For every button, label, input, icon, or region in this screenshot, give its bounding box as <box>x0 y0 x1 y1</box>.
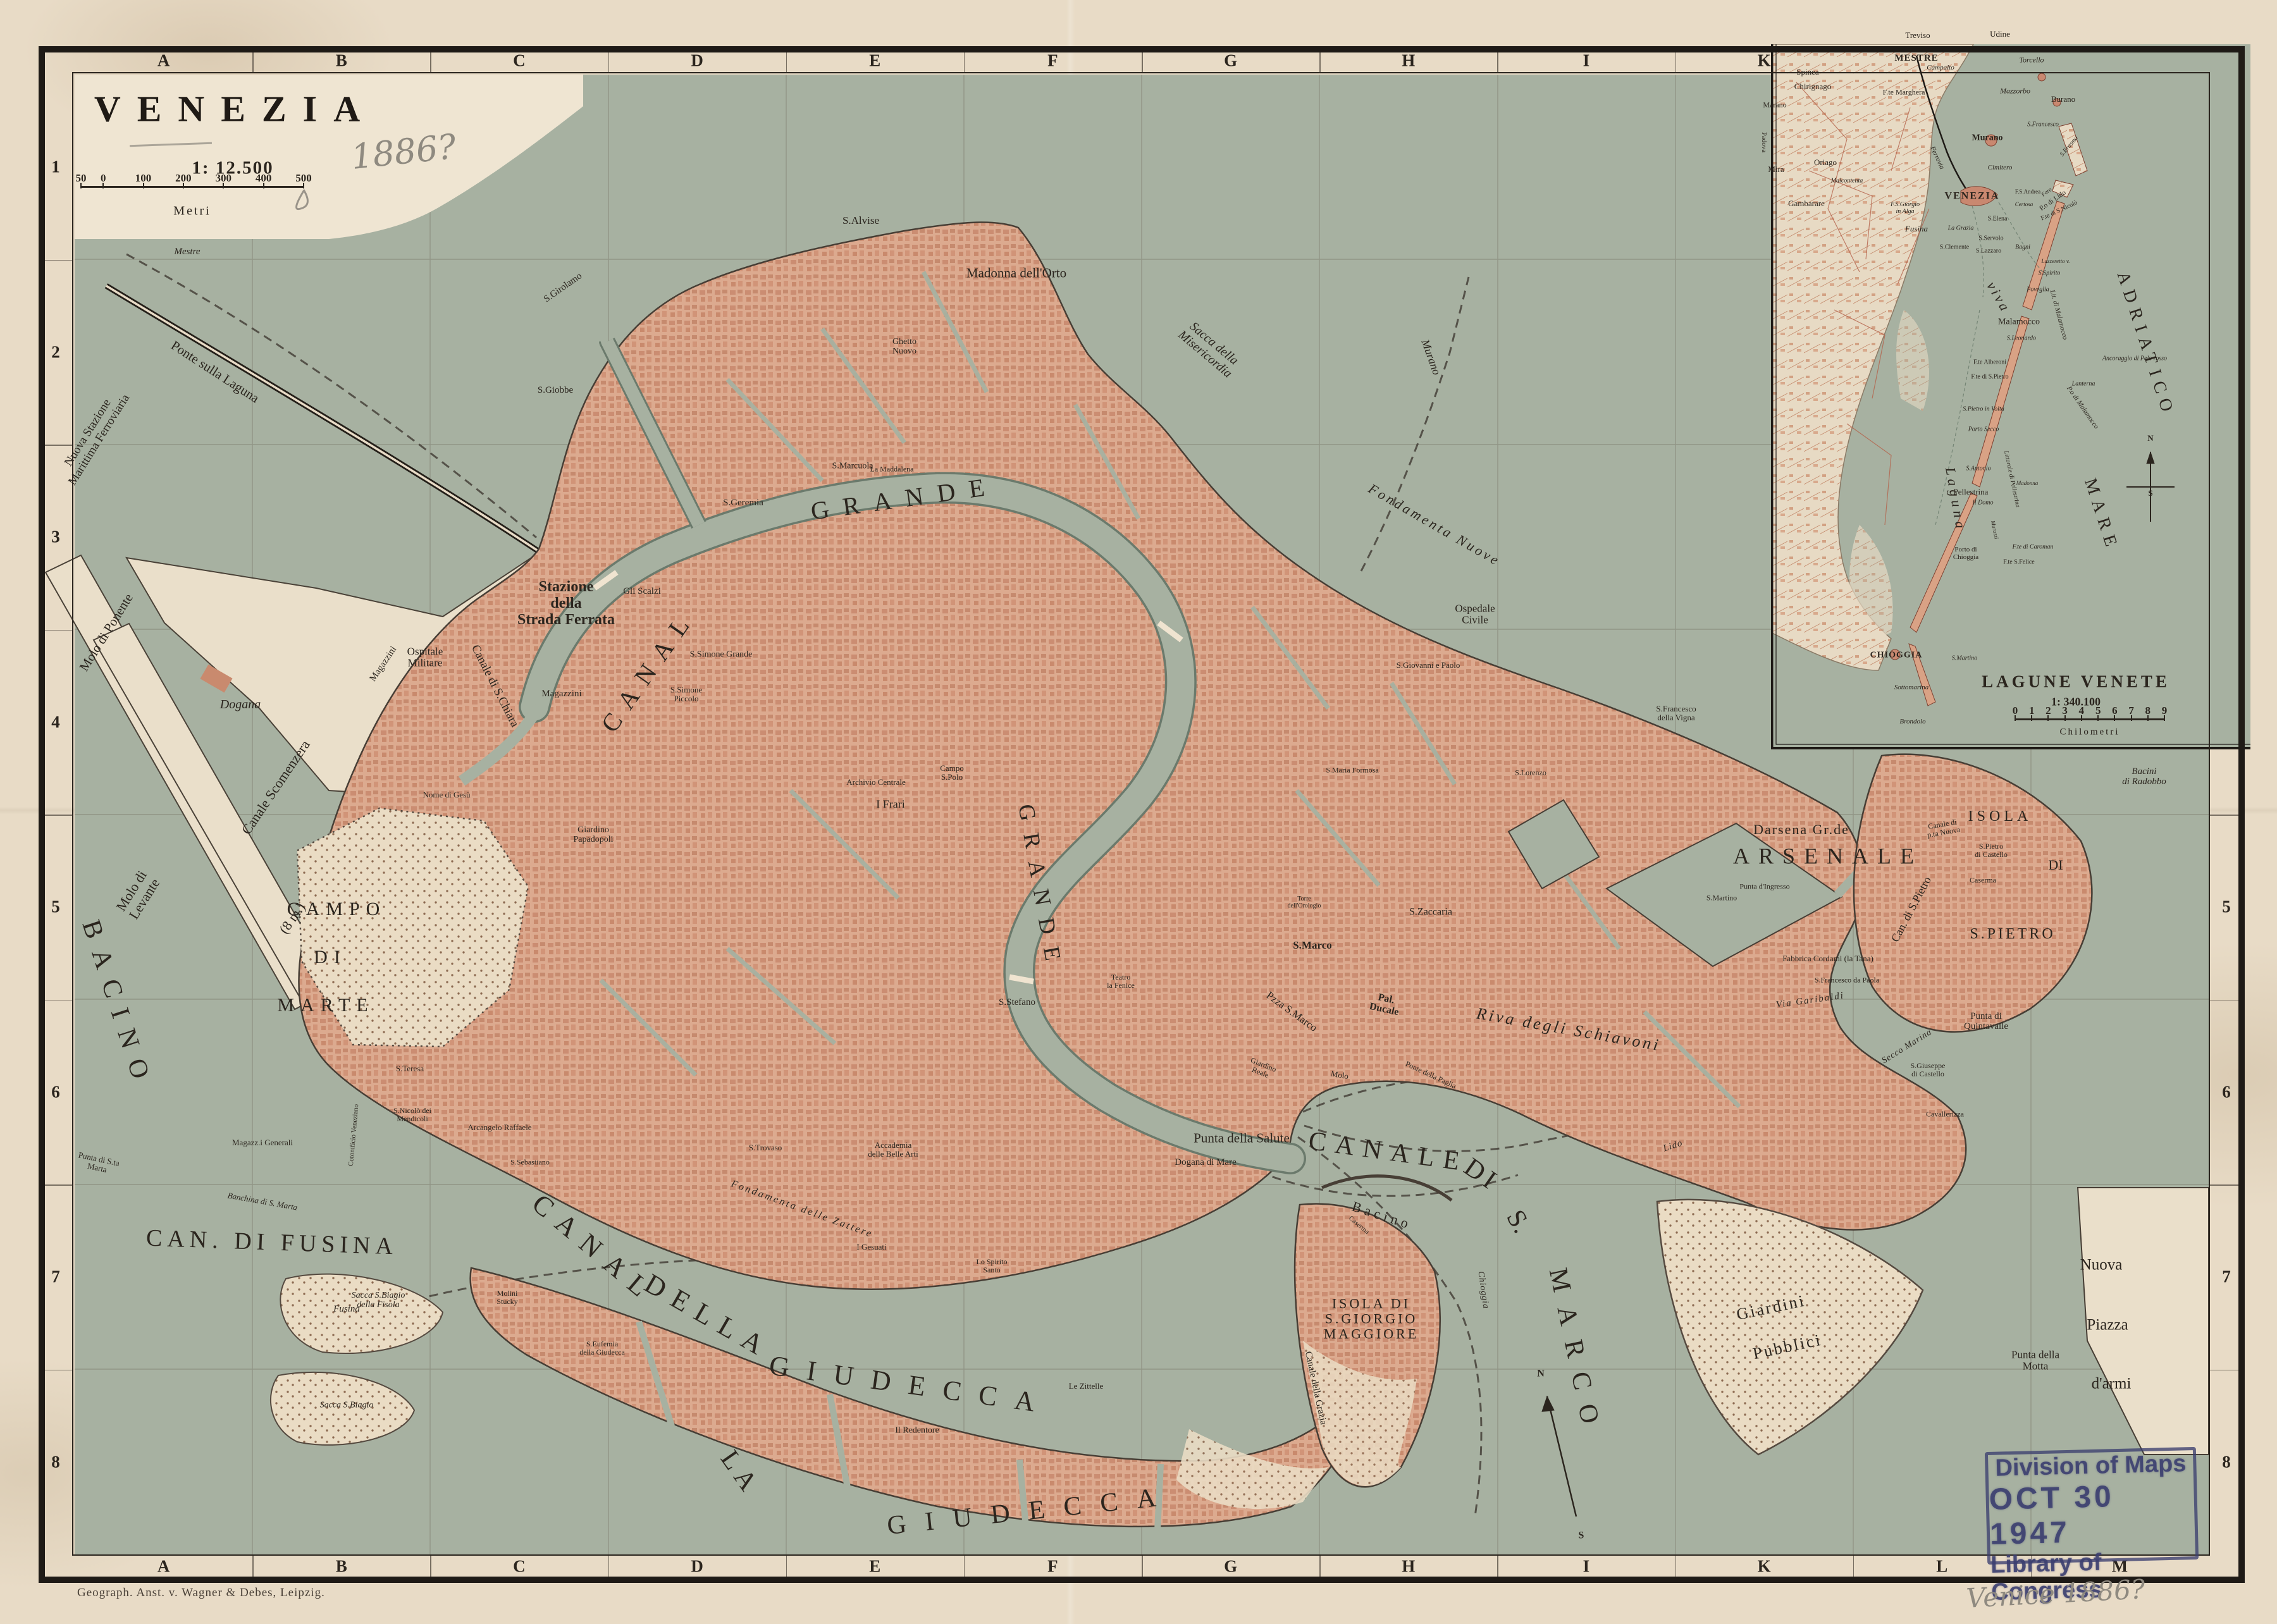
map-label: (8 m.) <box>276 900 308 937</box>
map-label: Sottomarina <box>1894 684 1928 692</box>
map-label: Bacino <box>1350 1199 1414 1233</box>
map-label: Campalto <box>1927 65 1954 72</box>
map-label: Il Domo <box>1972 500 1993 507</box>
map-label: Mestre <box>174 247 200 257</box>
map-label: F.te di S.Pietro <box>1971 374 2008 381</box>
pencil-year-annotation: 1886? <box>349 126 458 177</box>
map-label: S.Francesco da Paola <box>1815 976 1879 985</box>
scale-tick-label: 500 <box>295 172 312 185</box>
map-label: S.Nicolò dei Mendicoli <box>393 1107 431 1123</box>
map-label: Treviso <box>1905 31 1930 40</box>
map-label: Fusina <box>333 1304 360 1314</box>
map-label: Torcello <box>2019 56 2044 65</box>
map-label: S.Giuseppe di Castello <box>1911 1062 1946 1078</box>
map-label: Udine <box>1990 30 2010 39</box>
map-label: Caserma <box>1347 1215 1370 1236</box>
map-label: Giardino Papadopoli <box>574 825 614 844</box>
map-label: Sacca S.Biagio <box>320 1400 374 1410</box>
scale-bar: 500100200300400500 <box>81 176 304 197</box>
inset-compass-north-label: N <box>2147 434 2153 443</box>
map-label: Porto Secco <box>1968 427 1999 434</box>
map-label: S.Francesco della Vigna <box>1656 704 1696 722</box>
map-label: Ferrovia <box>1928 145 1945 171</box>
map-label: Lit. di Malamocco <box>2048 289 2068 340</box>
scale-tick-label: 0 <box>101 172 106 185</box>
map-label: VENEZIA <box>1945 190 2000 201</box>
scale-bar-line <box>2015 718 2164 720</box>
map-label: Porto di Chioggia <box>1953 546 1978 562</box>
map-sheet: AABBCCDDEEFFGGHHIIKKLLMM1122334455667788 <box>0 0 2277 1624</box>
inset-scale-ratio: 1: 340.100 <box>2051 696 2101 709</box>
scale-tick-label: 3 <box>2062 704 2068 717</box>
map-label: MARCO <box>1543 1265 1607 1441</box>
map-label: Pubblici <box>1751 1331 1823 1363</box>
scale-unit: Metri <box>173 204 211 219</box>
map-label: Punta della Motta <box>2011 1350 2059 1373</box>
map-label: Pal. Ducale <box>1368 990 1402 1018</box>
map-label: Murano <box>1419 338 1443 376</box>
map-label: Burano <box>2051 95 2075 104</box>
map-label: Magazz.i Generali <box>232 1138 293 1147</box>
map-label: Dogana <box>220 698 261 712</box>
map-label: Ponte della Paglia <box>1404 1060 1457 1090</box>
map-label: S.Zaccaria <box>1409 906 1452 917</box>
map-label: I Frari <box>876 798 904 810</box>
map-label: Gambarare <box>1788 199 1825 208</box>
map-label: Chirignago <box>1794 82 1832 91</box>
map-label: GRANDE <box>1013 803 1067 975</box>
map-label: S.Pietro di Castello <box>1975 842 2008 859</box>
map-label: I Gesuati <box>856 1243 886 1252</box>
map-label: S.Martino <box>1952 656 1977 663</box>
scale-tick-label: 1 <box>2029 704 2035 717</box>
map-label: Oriago <box>1814 158 1837 167</box>
map-label: Molo <box>1330 1069 1349 1081</box>
inset-title: LAGUNE VENETE <box>1982 672 2170 692</box>
map-label: Pellestrina <box>1954 488 1989 496</box>
map-label: Cotonificio Veneziano <box>348 1104 361 1166</box>
map-label: Nuova <box>2080 1257 2123 1274</box>
map-label: S.Sebastiano <box>510 1159 550 1167</box>
map-label: Laguna <box>1942 466 1968 533</box>
map-label: F.te Alberoni <box>1973 360 2006 367</box>
map-label: LA <box>715 1446 766 1501</box>
map-label: Murazzi <box>1989 520 1999 540</box>
map-label: S.Leonardo <box>2007 336 2036 343</box>
map-label: F.te di S.Nicolò <box>2040 200 2078 223</box>
map-label: Punta di Quintavalle <box>1964 1011 2008 1031</box>
stamp-line-1: Division of Maps <box>1995 1450 2187 1482</box>
map-label: F.te S.Felice <box>2003 560 2034 567</box>
map-label: CANALE <box>1307 1127 1470 1178</box>
scale-bar-line <box>81 186 304 188</box>
map-label: Padova <box>1760 132 1767 152</box>
scale-tick-label: 50 <box>76 172 87 185</box>
map-label: Caserma <box>1970 877 1996 885</box>
map-label: Certosa <box>2015 202 2033 208</box>
map-label: MESTRE <box>1894 53 1938 63</box>
map-label: Nuova Stazione Marittima Ferroviaria <box>55 385 132 488</box>
stamp-date: OCT 30 1947 <box>1989 1477 2195 1552</box>
map-label: ADRIATICO <box>2113 269 2178 420</box>
map-label: S.Francesco <box>2027 122 2059 129</box>
map-label: S.Marco <box>1293 940 1332 951</box>
map-label: GIUDECCA <box>885 1482 1176 1541</box>
map-label: S.Giobbe <box>538 385 573 395</box>
map-label: Banchina di S. Marta <box>227 1191 299 1212</box>
map-label: S.Antonio <box>1966 466 1990 473</box>
map-label: Ponte sulla Laguna <box>168 338 261 406</box>
map-label: Mazzorbo <box>2000 87 2030 95</box>
map-label: viva <box>1984 279 2014 315</box>
map-label: Dogana di Mare <box>1175 1157 1236 1167</box>
map-label: S.Alvise <box>842 215 879 226</box>
map-label: CAN. DI FUSINA <box>145 1226 398 1260</box>
map-label: S.PIETRO <box>1970 926 2055 943</box>
map-label: Cimitero <box>1988 164 2013 172</box>
map-label: S.Simone Grande <box>690 649 753 659</box>
map-label: Le Zittelle <box>1069 1382 1104 1391</box>
map-label: Magazzini <box>541 689 581 699</box>
map-label: Sacca S.Biagio della Fisola <box>352 1291 405 1310</box>
map-label: Ospitale Militare <box>407 646 443 670</box>
map-label: Via Garibaldi <box>1775 990 1845 1010</box>
map-label: P.o di Lido <box>2039 189 2068 212</box>
map-label: GRANDE <box>809 472 1000 525</box>
map-label: S.Maria Formosa <box>1326 766 1378 775</box>
publisher-imprint: Geograph. Anst. v. Wagner & Debes, Leipz… <box>77 1586 325 1600</box>
stamp-line-3: Library of Congress <box>1990 1547 2197 1606</box>
map-label: S.Lorenzo <box>1515 769 1546 777</box>
map-label: Mira <box>1768 165 1784 174</box>
map-label: Can. di S.Pietro <box>1889 875 1934 944</box>
library-of-congress-stamp: Division of Maps OCT 30 1947 Library of … <box>1985 1447 2199 1565</box>
map-label: F.S.Andrea <box>2015 189 2040 195</box>
map-label: Giardino Reale <box>1246 1056 1277 1081</box>
map-label: Teatro la Fenice <box>1107 973 1135 990</box>
scale-tick-label: 300 <box>216 172 232 185</box>
scale-tick-label: 2 <box>2046 704 2051 717</box>
map-label: Darsena Gr.de <box>1753 822 1849 837</box>
map-label: Bagni <box>2015 245 2030 252</box>
map-label: Canale Scomenzera <box>238 737 312 837</box>
scale-tick-label: 200 <box>175 172 192 185</box>
map-label: F.te Marghera <box>1883 89 1925 97</box>
map-label: ISOLA <box>1968 809 2032 825</box>
map-label: Il Redentore <box>895 1425 939 1435</box>
map-label: Malamocco <box>1998 317 2040 326</box>
map-label: La Maddalena <box>870 465 914 474</box>
map-label: F.te di Caroman <box>2013 544 2054 551</box>
inset-scale-bar: 0123456789 <box>2015 708 2164 727</box>
map-label: S.Teresa <box>396 1064 424 1073</box>
map-label: S.Marcuola <box>832 461 873 471</box>
map-label: Ghetto Nuovo <box>892 337 916 356</box>
map-label: Ancoraggio di Pelo rosso <box>2102 356 2167 363</box>
map-label: S.Trovaso <box>749 1143 782 1152</box>
map-label: La Grazia <box>1948 226 1974 233</box>
map-label: Cavallerizza <box>1926 1110 1964 1119</box>
map-label: CAMPO <box>287 899 386 920</box>
map-label: GIUDECCA <box>767 1350 1054 1420</box>
map-label: Canale della Grazia <box>1303 1350 1328 1425</box>
scale-tick-label: 6 <box>2112 704 2118 717</box>
scale-tick-label: 4 <box>2079 704 2085 717</box>
pencil-underline <box>130 142 212 147</box>
map-label: Arcangelo Raffaele <box>467 1123 531 1132</box>
map-label: S.Martino <box>1706 894 1737 902</box>
scale-tick-label: 5 <box>2095 704 2101 717</box>
map-label: Lo Spirito Santo <box>976 1258 1007 1274</box>
map-label: Campo S.Polo <box>940 764 964 782</box>
map-label: Magazzini <box>368 644 399 684</box>
map-label: Sacca della Misericordia <box>1175 317 1243 381</box>
map-label: Torre dell'Orologio <box>1288 896 1321 910</box>
map-label: S.Lazzaro <box>1976 249 2001 255</box>
map-label: Punta di S.ta Marta <box>76 1150 120 1176</box>
scale-tick-label: 0 <box>2013 704 2018 717</box>
map-label: S.Girolamo <box>542 271 584 304</box>
map-label: DI <box>314 947 347 968</box>
map-label: Giardini <box>1735 1292 1807 1324</box>
map-label: Punta della Salute <box>1194 1131 1290 1146</box>
map-label: Fondamenta Nuove <box>1366 481 1503 569</box>
map-label: Pzza S.Marco <box>1264 990 1319 1034</box>
map-label: CANAL <box>596 603 701 737</box>
scale-tick-label: 7 <box>2128 704 2134 717</box>
map-label: Lido <box>1662 1138 1684 1153</box>
map-label: Archivio Centrale <box>846 778 906 787</box>
map-label: Molo di Ponente <box>77 591 135 674</box>
map-label: Nome di Gesù <box>423 790 470 799</box>
map-label: S.Servolo <box>1978 236 2003 243</box>
map-label: Gli Scalzi <box>623 586 661 596</box>
map-label: MARTE <box>277 995 374 1016</box>
map-title: VENEZIA <box>94 88 376 130</box>
map-label: Brondolo <box>1899 718 1925 726</box>
map-label: Lazzeretto v. <box>2042 259 2070 265</box>
scale-tick-label: 9 <box>2162 704 2168 717</box>
map-label: Madonna <box>2016 481 2039 487</box>
map-label: Molo di Levante <box>113 868 163 921</box>
map-label: Canale di S.Chiara <box>468 643 521 730</box>
map-label: Marano <box>1763 101 1786 109</box>
map-label: S.Giovanni e Paolo <box>1397 661 1460 670</box>
map-label: Littorale di Pellestrina <box>2002 450 2021 508</box>
compass-south-label: S <box>1579 1530 1584 1541</box>
map-label: Malcontenta <box>1831 178 1863 185</box>
map-label: Faro <box>2040 187 2053 198</box>
map-label: Poveglia <box>2027 287 2049 294</box>
map-label: S.Geremia <box>723 498 763 508</box>
map-label: Murano <box>1972 133 2003 142</box>
map-label: Accademia delle Belle Arti <box>868 1141 918 1159</box>
map-label: DI <box>2048 858 2063 873</box>
map-label: Madonna dell'Orto <box>966 266 1066 281</box>
map-label: Molini Stucky <box>497 1289 517 1306</box>
map-label: CHIOGGIA <box>1870 650 1923 660</box>
map-label: ISOLA DI S.GIORGIO MAGGIORE <box>1324 1296 1419 1341</box>
map-label: S.Simone Piccolo <box>670 686 702 703</box>
map-label: DELLA <box>639 1268 777 1365</box>
map-label: Piazza <box>2087 1317 2128 1334</box>
map-label: Fabbrica Cordami (la Tana) <box>1782 954 1873 963</box>
map-label: S.Pietro in Volta <box>1963 407 2004 414</box>
map-label: Spinea <box>1796 68 1818 77</box>
scale-tick-label: 8 <box>2145 704 2151 717</box>
map-label: Riva degli Schiavoni <box>1475 1005 1662 1055</box>
map-label: Chioggia <box>1476 1270 1490 1310</box>
map-label: Fusina <box>1905 225 1928 233</box>
map-label: DI <box>1459 1153 1504 1196</box>
map-label: F.S.Giorgio in Alga <box>1891 202 1920 216</box>
inset-scale-unit: Chilometri <box>2060 727 2120 738</box>
map-label: P.o di Malamocco <box>2064 385 2099 431</box>
scale-tick-label: 400 <box>256 172 272 185</box>
map-label: S.Clemente <box>1940 245 1969 252</box>
map-label: Ospedale Civile <box>1455 603 1495 627</box>
map-label: Fondamenta delle Zattere <box>729 1178 874 1240</box>
map-label: Secco Marina <box>1880 1028 1934 1066</box>
map-label: Stazione della Strada Ferrata <box>517 579 615 629</box>
map-label: S.Spirito <box>2039 271 2061 278</box>
map-label: S.Erasmo <box>2059 135 2080 159</box>
map-label: d'armi <box>2092 1375 2132 1393</box>
map-label: Lanterna <box>2072 381 2095 388</box>
map-label: Bacini di Radobbo <box>2122 766 2166 787</box>
map-label: MARE <box>2080 476 2122 555</box>
map-label: S.Eufemia della Giudecca <box>579 1340 625 1356</box>
map-label: S.Elena <box>1988 216 2008 223</box>
map-label: S.Stefano <box>999 997 1035 1007</box>
map-label: Punta d'Ingresso <box>1739 883 1789 891</box>
map-label: S. <box>1500 1205 1536 1238</box>
scale-tick-label: 100 <box>135 172 152 185</box>
map-label: ARSENALE <box>1733 844 1923 869</box>
labels-layer: VENEZIA 1886? 1: 12.500 5001002003004005… <box>0 0 2277 1624</box>
map-label: CANAL <box>526 1188 663 1310</box>
map-label: BACINO <box>76 916 158 1094</box>
inset-compass-south-label: S <box>2148 489 2152 498</box>
compass-north-label: N <box>1537 1368 1545 1379</box>
map-label: Canale di p.ta Nuova <box>1925 818 1961 840</box>
